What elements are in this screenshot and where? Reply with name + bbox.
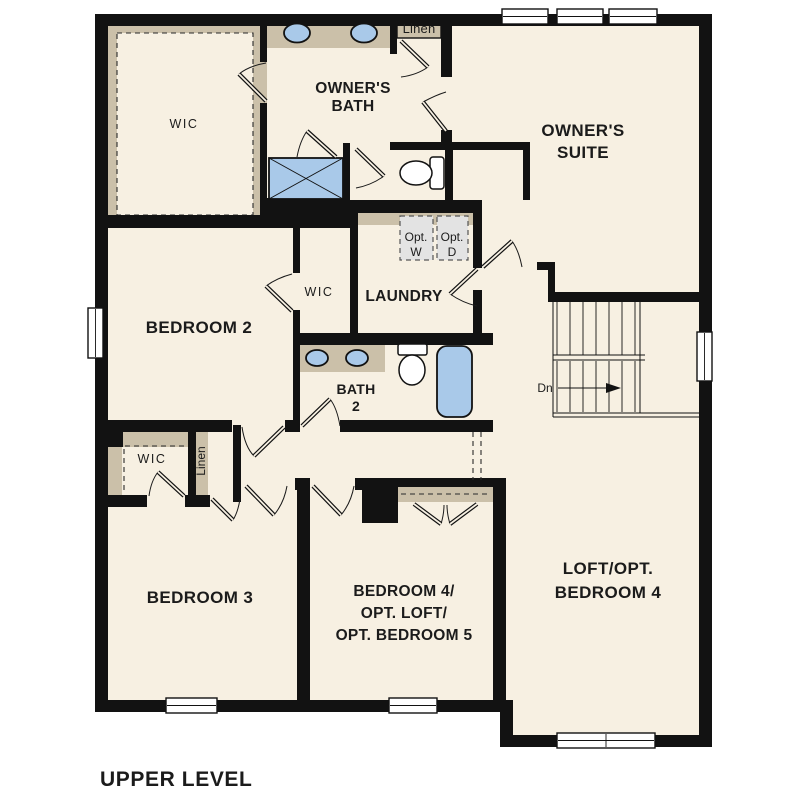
bedroom3-wic-shelf-left <box>108 447 122 497</box>
vanity-sink-1 <box>284 24 310 43</box>
laundry-label: LAUNDRY <box>365 288 443 305</box>
floor-plan-page: WIC OWNER'S BATH Linen OWNER'S SUITE BED… <box>0 0 810 810</box>
plan-title: UPPER LEVEL <box>100 768 252 791</box>
bath2-toilet <box>398 344 427 385</box>
window-bedroom3 <box>166 698 217 713</box>
window-top-2 <box>557 9 603 24</box>
bath2-label-2: 2 <box>352 398 360 414</box>
bath2-label-1: BATH <box>336 381 375 397</box>
opt-washer-label-1: Opt. <box>405 230 428 244</box>
window-loft <box>557 733 655 748</box>
bath2-sink-1 <box>306 350 328 366</box>
loft-label-2: BEDROOM 4 <box>555 583 662 602</box>
vanity-sink-2 <box>351 24 377 43</box>
bedroom3-label: BEDROOM 3 <box>147 588 254 607</box>
opt-washer-label-2: W <box>410 245 422 259</box>
window-stair-landing <box>697 332 712 381</box>
opt-dryer-label-1: Opt. <box>441 230 464 244</box>
window-bedroom2 <box>88 308 103 358</box>
bedroom2-label: BEDROOM 2 <box>146 318 253 337</box>
loft-label-1: LOFT/OPT. <box>563 559 653 578</box>
owners-bath-label-2: BATH <box>331 98 374 115</box>
bedroom4-label-2: OPT. LOFT/ <box>361 605 448 622</box>
bedroom4-label-3: OPT. BEDROOM 5 <box>336 627 473 644</box>
owners-suite-label-2: SUITE <box>557 143 609 162</box>
window-bedroom4 <box>389 698 437 713</box>
owners-wic-label: WIC <box>169 117 198 131</box>
bedroom3-wic-label: WIC <box>137 452 166 466</box>
hall-linen-label: Linen <box>194 446 208 475</box>
opt-dryer-label-2: D <box>448 245 457 259</box>
shower <box>269 158 343 199</box>
bedroom2-wic-label: WIC <box>304 285 333 299</box>
bath2-sink-2 <box>346 350 368 366</box>
floor-plan-drawing: WIC OWNER'S BATH Linen OWNER'S SUITE BED… <box>0 0 810 810</box>
owners-bath-label-1: OWNER'S <box>315 80 391 97</box>
owners-suite-label-1: OWNER'S <box>541 121 624 140</box>
bathtub <box>437 346 472 417</box>
stairs-down-label: Dn <box>537 381 552 395</box>
bedroom4-label-1: BEDROOM 4/ <box>353 583 455 600</box>
window-top-3 <box>609 9 657 24</box>
linen-upper-label: Linen <box>403 21 436 36</box>
window-top-1 <box>502 9 548 24</box>
